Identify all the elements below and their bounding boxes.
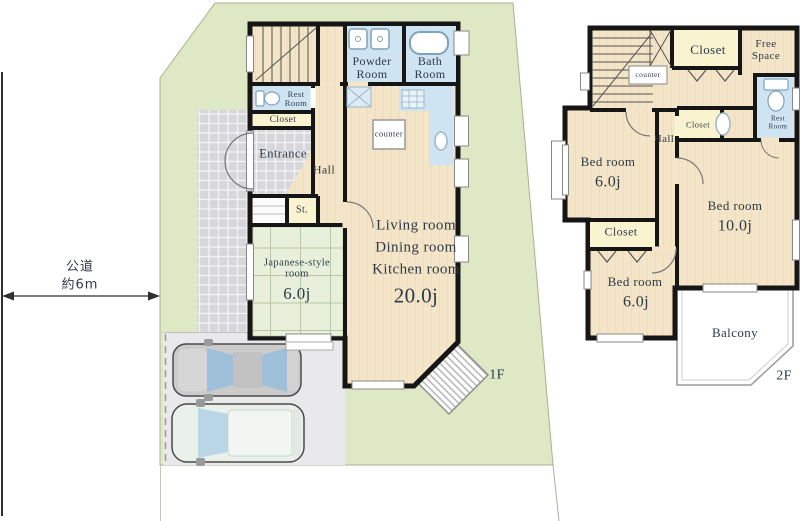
room-label-rest-1f: Rest Room [285,90,307,108]
car-minivan [172,399,304,466]
room-label-hall-1f: Hall [313,164,335,177]
road-label: 公道 約6m [62,258,99,293]
room-size-ldk: 20.0j [394,285,439,308]
room-label-bath: Bath Room [415,55,446,81]
room-label-hall-2f: Hall [654,134,675,146]
room-label-ldk: Living room Dining room Kitchen room [372,215,460,280]
walkway-tiles [197,110,253,332]
road-label-line1: 公道 [62,258,99,276]
room-size-bedroom-bottom: 6.0j [623,293,649,310]
room-label-storage: St. [296,206,308,217]
room-label-entrance: Entrance [259,147,307,161]
room-label-balcony: Balcony [712,326,758,340]
room-size-bedroom-left: 6.0j [595,173,621,190]
room-label-closet-1f: Closet [270,115,297,125]
room-label-free-space: Free Space [752,39,780,63]
room-label-powder: Powder Room [352,55,391,81]
room-label-bedroom-left: Bed room [581,155,636,169]
label-counter-2f: counter [635,71,660,79]
road-label-line2: 約6m [62,276,99,294]
floor-tag-1f: 1F [489,367,505,382]
room-label-closet-2f-top: Closet [690,43,726,57]
room-label-rest-2f: Rest Room [769,115,788,130]
floor-tag-2f: 2F [776,368,792,383]
floorplan-canvas: 公道 約6m Powder Room Bath Room Rest Room C… [0,0,800,521]
car-sedan [173,339,301,401]
room-label-japanese: Japanese-style room [264,258,330,281]
room-size-bedroom-right: 10.0j [718,217,752,234]
room-label-bedroom-right: Bed room [708,199,763,213]
room-label-closet-2f-mid: Closet [686,120,710,129]
road-dimension [2,72,160,516]
room-label-bedroom-bottom: Bed room [608,275,663,289]
room-label-closet-2f-bottom: Closet [604,226,637,239]
room-size-japanese: 6.0j [283,285,311,303]
label-counter-1f: counter [375,129,403,138]
